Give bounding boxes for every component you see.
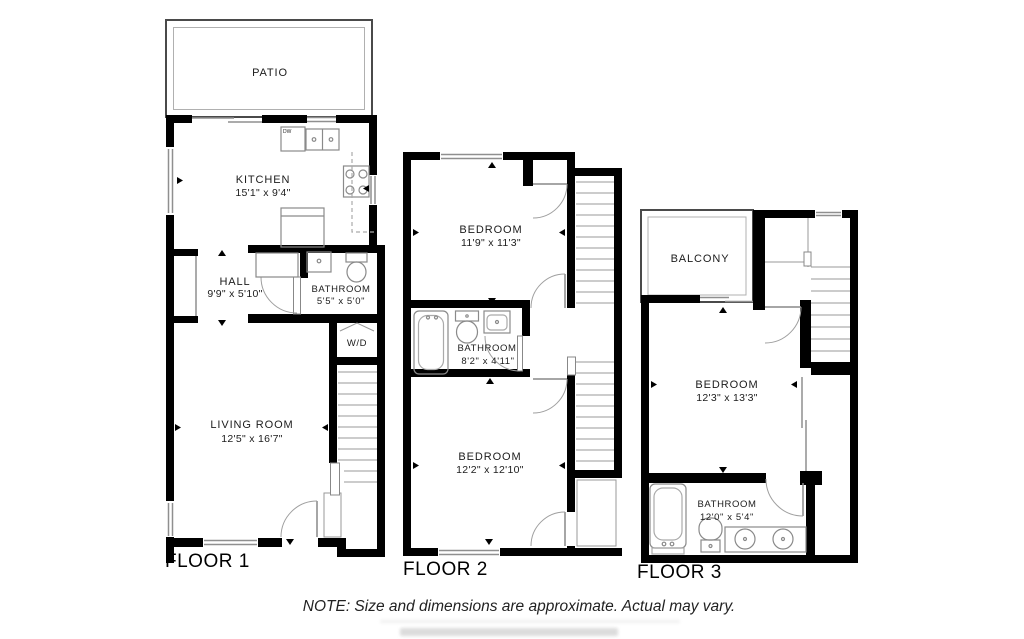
floor3-plan: BALCONY BEDROOM 12'3" x 13'3" BATHROOM 1…	[637, 210, 858, 583]
floor1-stairs	[338, 372, 377, 482]
floor1-plan: PATIO KITCHEN 15'1" x 9'4" HALL 9'9" x 5…	[165, 20, 385, 572]
room-label-bedroom3: BEDROOM	[695, 379, 758, 391]
room-label-patio: PATIO	[252, 67, 288, 79]
floor2-plan: BEDROOM 11'9" x 11'3" BATHROOM 8'2" x 4'…	[403, 152, 622, 580]
floor3-doors	[765, 307, 803, 516]
room-dims-hall: 9'9" x 5'10"	[207, 288, 262, 300]
floor3-windows	[700, 213, 841, 472]
floorplan-canvas: PATIO KITCHEN 15'1" x 9'4" HALL 9'9" x 5…	[0, 0, 1024, 639]
floor2-stairs	[576, 182, 616, 546]
room-label-wd: W/D	[347, 338, 367, 349]
room-dims-living: 12'5" x 16'7"	[221, 433, 283, 445]
room-dims-bedroom3: 12'3" x 13'3"	[696, 392, 758, 404]
room-label-bedroom1: BEDROOM	[459, 224, 522, 236]
room-label-living: LIVING ROOM	[210, 419, 293, 431]
room-label-bathroom3: BATHROOM	[698, 499, 757, 510]
floor2-label: FLOOR 2	[403, 559, 488, 580]
room-label-hall: HALL	[219, 276, 250, 288]
room-dims-bathroom2: 8'2" x 4'11"	[461, 356, 514, 367]
room-label-bedroom2: BEDROOM	[458, 451, 521, 463]
room-dims-bedroom2: 12'2" x 12'10"	[456, 464, 524, 476]
room-dims-kitchen: 15'1" x 9'4"	[235, 187, 290, 199]
room-dims-bathroom3: 12'0" x 5'4"	[700, 512, 754, 523]
blurred-watermark	[380, 620, 680, 636]
room-dims-bathroom1: 5'5" x 5'0"	[317, 296, 365, 307]
floor1-label: FLOOR 1	[165, 551, 250, 572]
floor2-walls	[403, 152, 622, 556]
floor3-label: FLOOR 3	[637, 562, 722, 583]
room-dims-bedroom1: 11'9" x 11'3"	[461, 237, 521, 249]
room-label-balcony: BALCONY	[671, 253, 730, 265]
fixture-label-dw: DW	[283, 129, 292, 135]
room-label-bathroom1: BATHROOM	[312, 284, 371, 295]
room-label-bathroom2: BATHROOM	[458, 343, 517, 354]
room-label-kitchen: KITCHEN	[236, 174, 291, 186]
floor1-fixtures	[256, 127, 377, 282]
floorplan-drawing: PATIO KITCHEN 15'1" x 9'4" HALL 9'9" x 5…	[0, 0, 1024, 639]
disclaimer-note: NOTE: Size and dimensions are approximat…	[303, 598, 735, 615]
